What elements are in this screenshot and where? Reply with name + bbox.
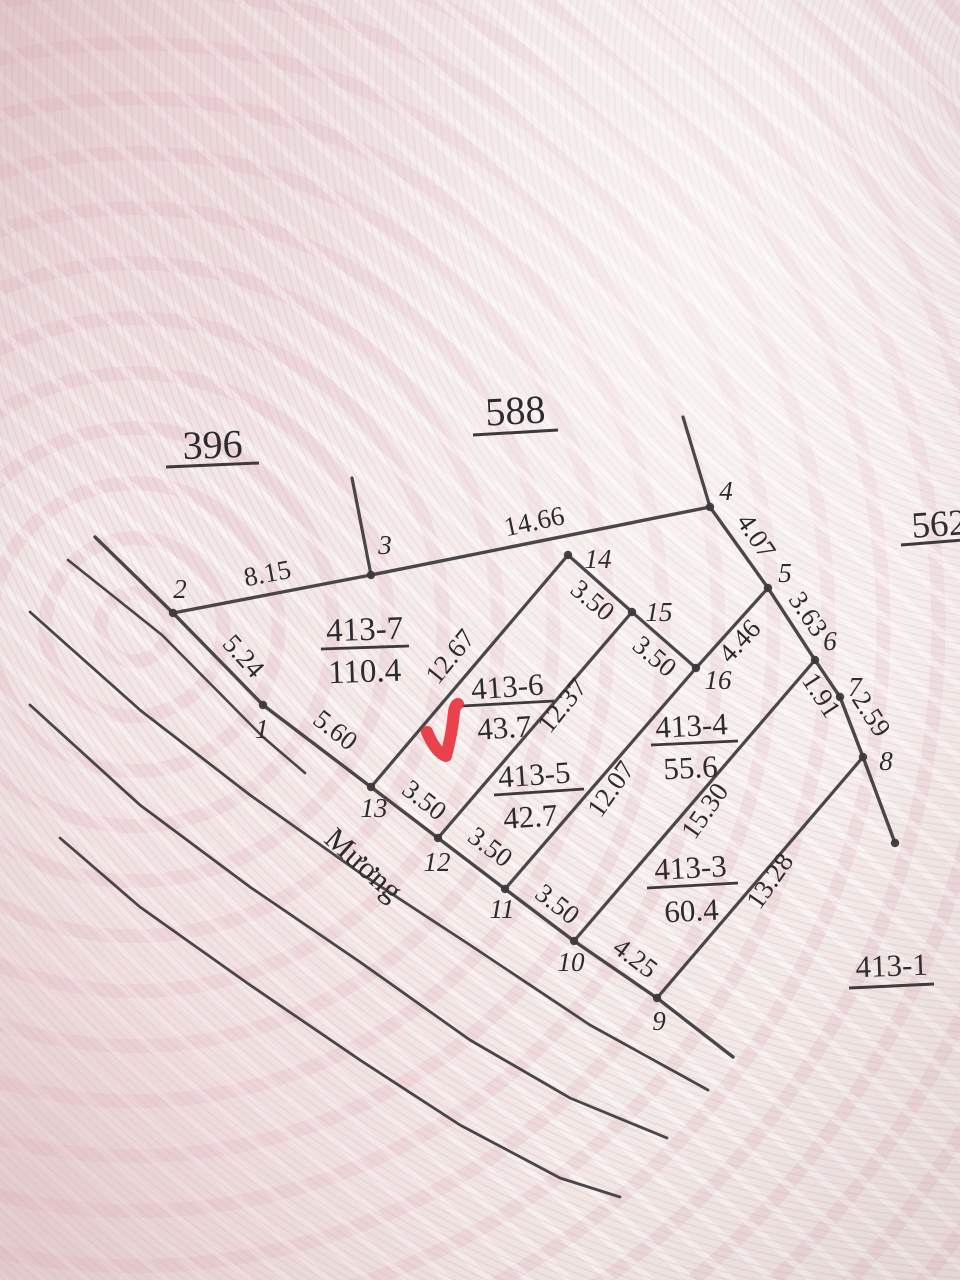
- vertex-dot: [764, 584, 772, 592]
- vertex-dot: [367, 783, 375, 791]
- dimension-label: 8.15: [241, 554, 293, 592]
- dimension-label: 5.24: [217, 628, 271, 684]
- point-number: 9: [652, 1006, 666, 1036]
- dimension-label: 3.50: [397, 774, 453, 827]
- dimension-label: 4.46: [712, 613, 766, 668]
- parcel-area: 60.4: [663, 892, 720, 930]
- point-number: 3: [377, 530, 392, 560]
- region-label-underline: [166, 463, 259, 467]
- point3-extension: [352, 478, 371, 575]
- point-number: 7: [848, 672, 863, 702]
- parcel-number: 413-7: [326, 611, 404, 650]
- canal-label: Mương: [318, 820, 410, 907]
- vertex-dot: [434, 834, 442, 842]
- point-number: 4: [719, 476, 733, 506]
- dimension-label: 5.60: [308, 704, 364, 757]
- parcel-number: 413-3: [653, 848, 727, 887]
- dimension-label: 4.25: [608, 932, 664, 984]
- dimension-label: 3.50: [530, 878, 586, 931]
- parcel-number: 413-4: [654, 706, 729, 745]
- red-checkmark: [427, 704, 458, 756]
- region-label: 588: [484, 386, 546, 434]
- vertex-dot: [169, 609, 177, 617]
- vertex-dot: [706, 503, 714, 511]
- point-number: 5: [778, 558, 792, 588]
- point-number: 15: [646, 597, 673, 627]
- point-number: 14: [585, 544, 612, 574]
- vertex-dot: [692, 664, 700, 672]
- dimension-label: 3.50: [627, 629, 682, 682]
- region-label: 396: [182, 421, 244, 468]
- dimension-label: 14.66: [501, 500, 567, 542]
- vertex-dot: [653, 994, 661, 1002]
- parcel-number: 413-5: [497, 755, 572, 795]
- point-number: 6: [823, 626, 837, 656]
- vertex-dot: [811, 656, 819, 664]
- vertex-dot: [570, 937, 578, 945]
- parcel-area: 43.7: [476, 708, 533, 747]
- point-number: 8: [879, 746, 893, 776]
- point4-extension: [683, 417, 710, 507]
- parcel-number: 413-6: [470, 667, 545, 707]
- point-number: 16: [705, 665, 733, 695]
- point-number: 1: [255, 714, 269, 744]
- parcel-area: 110.4: [328, 653, 402, 692]
- point-number: 2: [173, 574, 187, 604]
- vertex-dot: [259, 701, 267, 709]
- dimension-label: 13.28: [740, 847, 799, 914]
- cadastral-map-photo: 396588562413-1413-7110.4413-643.7413-542…: [0, 0, 960, 1280]
- vertex-dot: [891, 839, 899, 847]
- point-number: 11: [490, 894, 515, 924]
- vertex-dot: [501, 885, 509, 893]
- point-number: 12: [424, 847, 451, 877]
- point-number: 10: [558, 947, 586, 977]
- dimension-label: 4.07: [731, 508, 782, 564]
- vertex-dot: [628, 608, 636, 616]
- point-number: 13: [361, 793, 388, 823]
- vertex-dot: [564, 551, 572, 559]
- region-label: 413-1: [855, 947, 929, 985]
- survey-drawing: 396588562413-1413-7110.4413-643.7413-542…: [0, 0, 960, 1280]
- vertex-dot: [367, 571, 375, 579]
- region-label-underline: [849, 984, 934, 988]
- parcel-area: 42.7: [502, 797, 559, 836]
- dimension-label: 3.50: [565, 573, 620, 626]
- vertex-dot: [859, 753, 867, 761]
